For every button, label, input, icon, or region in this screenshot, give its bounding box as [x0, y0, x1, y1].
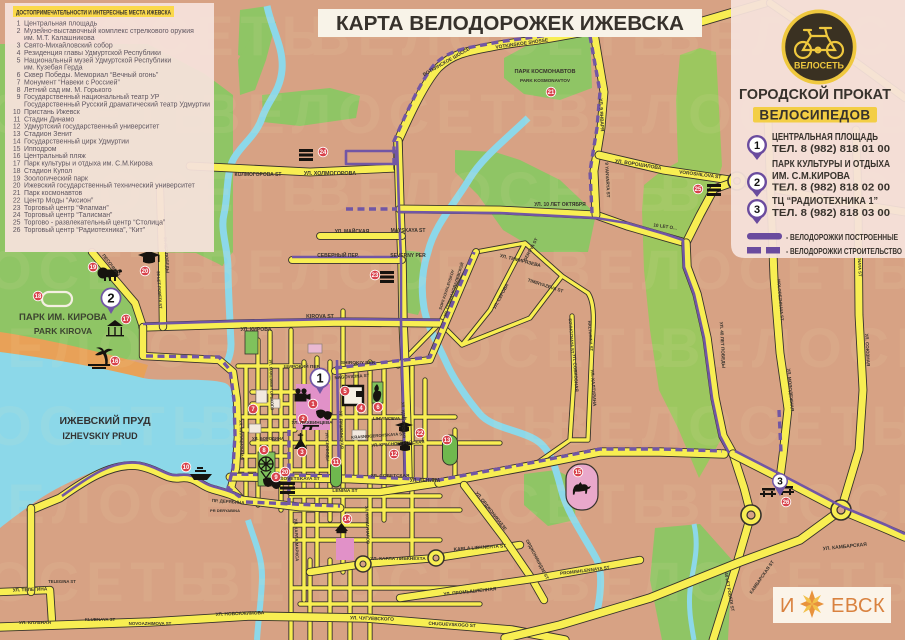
svg-text:23: 23 — [372, 273, 379, 279]
svg-text:SEVERNY PER: SEVERNY PER — [390, 253, 426, 259]
svg-text:10: 10 — [183, 465, 190, 471]
svg-text:5: 5 — [17, 57, 21, 64]
svg-text:Стадин Динамо: Стадин Динамо — [24, 116, 74, 123]
svg-text:26: 26 — [13, 227, 21, 234]
svg-text:KIROVA ST: KIROVA ST — [306, 314, 334, 320]
svg-text:ГОРОДСКОЙ ПРОКАТ: ГОРОДСКОЙ ПРОКАТ — [739, 85, 891, 103]
svg-text:Центральная площадь: Центральная площадь — [24, 21, 98, 28]
svg-text:Торговый центр “Радиотехника”: Торговый центр “Радиотехника”, “Кит” — [24, 226, 146, 234]
svg-text:УЛ. ЛЕНИНА: УЛ. ЛЕНИНА — [410, 478, 441, 484]
svg-text:1: 1 — [17, 21, 21, 28]
svg-text:Центр Моды “Аксион”: Центр Моды “Аксион” — [24, 197, 94, 204]
svg-text:Музейно-выставочный комплекс с: Музейно-выставочный комплекс стрелкового… — [24, 27, 194, 35]
svg-text:Ижевский государственный техни: Ижевский государственный технический уни… — [24, 182, 196, 190]
svg-text:11: 11 — [333, 460, 340, 466]
svg-text:3: 3 — [17, 43, 21, 50]
svg-text:Торговый центр “Флагман”: Торговый центр “Флагман” — [24, 204, 109, 212]
svg-text:ИМ. С.М.КИРОВА: ИМ. С.М.КИРОВА — [772, 171, 851, 182]
svg-text:Стадион Зенит: Стадион Зенит — [24, 131, 73, 138]
svg-text:19: 19 — [90, 265, 97, 271]
svg-text:Парк космонавтов: Парк космонавтов — [24, 190, 83, 197]
svg-text:УЛ. ХОЛМОГОРОВА: УЛ. ХОЛМОГОРОВА — [304, 171, 356, 177]
svg-text:ВЕЛОСЕТЬ: ВЕЛОСЕТЬ — [200, 82, 569, 145]
svg-text:ДОСТОПРИМЕЧАТЕЛЬНОСТИ И ИНТЕРЕ: ДОСТОПРИМЕЧАТЕЛЬНОСТИ И ИНТЕРЕСНЫЕ МЕСТА… — [16, 10, 171, 17]
svg-text:MAYSKAYA ST: MAYSKAYA ST — [391, 228, 426, 234]
svg-text:УЛ. ТЕЛЕГИНА: УЛ. ТЕЛЕГИНА — [13, 586, 48, 593]
svg-text:КОЛМОГОРОВА ST: КОЛМОГОРОВА ST — [235, 172, 282, 178]
svg-text:25: 25 — [13, 220, 21, 227]
svg-text:PR DERYABINA: PR DERYABINA — [210, 508, 240, 513]
svg-text:Летний сад им. М. Горького: Летний сад им. М. Горького — [24, 86, 112, 94]
svg-text:17: 17 — [123, 317, 130, 323]
svg-text:Пристань Ижевск: Пристань Ижевск — [24, 109, 81, 116]
svg-text:Парк культуры и отдыха им. С.М: Парк культуры и отдыха им. С.М.Кирова — [24, 161, 153, 168]
svg-text:15: 15 — [13, 146, 21, 153]
svg-text:22: 22 — [417, 431, 424, 437]
svg-text:УЛ. КИРОВА: УЛ. КИРОВА — [240, 327, 271, 333]
svg-text:24: 24 — [320, 150, 327, 156]
svg-text:2: 2 — [17, 28, 21, 35]
svg-text:20: 20 — [282, 470, 289, 476]
svg-text:6: 6 — [17, 72, 21, 79]
svg-text:Государственный цирк Удмуртии: Государственный цирк Удмуртии — [24, 137, 129, 145]
svg-text:13: 13 — [444, 438, 451, 444]
svg-text:- ВЕЛОДОРОЖКИ СТРОИТЕЛЬСТВО: - ВЕЛОДОРОЖКИ СТРОИТЕЛЬСТВО — [786, 247, 902, 256]
svg-text:УЛ. КАРЛА ЛИБКНЕХТА: УЛ. КАРЛА ЛИБКНЕХТА — [370, 556, 426, 562]
svg-text:17: 17 — [13, 161, 21, 168]
svg-text:ЦЕНТРАЛЬНАЯ ПЛОЩАДЬ: ЦЕНТРАЛЬНАЯ ПЛОЩАДЬ — [772, 132, 878, 143]
svg-text:4: 4 — [17, 50, 21, 57]
svg-text:ВЕЛОСЕТЬ: ВЕЛОСЕТЬ — [900, 550, 905, 613]
svg-text:19: 19 — [13, 175, 21, 182]
svg-text:ВЕЛОСИПЕДОВ: ВЕЛОСИПЕДОВ — [759, 108, 870, 123]
svg-text:24: 24 — [13, 212, 21, 219]
svg-text:PARK KOSMONAVTOV: PARK KOSMONAVTOV — [520, 78, 571, 83]
svg-text:Государственный национальный т: Государственный национальный театр УР — [24, 93, 160, 101]
svg-text:21: 21 — [548, 90, 555, 96]
svg-text:25: 25 — [695, 187, 702, 193]
svg-text:ТЕЛ. 8 (982) 818 03 00: ТЕЛ. 8 (982) 818 03 00 — [772, 208, 890, 219]
svg-text:8: 8 — [17, 87, 21, 94]
svg-text:Резиденция главы Удмуртской Ре: Резиденция главы Удмуртской Республики — [24, 49, 161, 57]
svg-text:16: 16 — [13, 153, 21, 160]
svg-text:SOVETSKAYA ST: SOVETSKAYA ST — [280, 476, 320, 482]
svg-text:TELEGINA ST: TELEGINA ST — [48, 579, 76, 584]
svg-text:ТЦ “РАДИОТЕХНИКА 1”: ТЦ “РАДИОТЕХНИКА 1” — [772, 196, 878, 207]
svg-text:PARK KIROVA: PARK KIROVA — [34, 326, 92, 336]
svg-text:18: 18 — [35, 294, 42, 300]
svg-text:КАРТА ВЕЛОДОРОЖЕК ИЖЕВСКА: КАРТА ВЕЛОДОРОЖЕК ИЖЕВСКА — [336, 12, 684, 35]
svg-text:9: 9 — [17, 94, 21, 101]
svg-text:ТЕЛ. 8 (982) 818 01 00: ТЕЛ. 8 (982) 818 01 00 — [772, 144, 890, 155]
svg-text:И: И — [780, 595, 794, 617]
svg-text:2: 2 — [107, 291, 114, 306]
svg-text:Ипподром: Ипподром — [24, 146, 57, 153]
svg-text:18: 18 — [13, 168, 21, 175]
svg-text:14: 14 — [13, 138, 21, 145]
svg-text:26: 26 — [783, 500, 790, 506]
svg-text:Центральный пляж: Центральный пляж — [24, 152, 86, 160]
svg-text:16: 16 — [112, 359, 119, 365]
svg-text:им. М.Т. Калашникова: им. М.Т. Калашникова — [24, 35, 95, 42]
svg-text:ПАРК КУЛЬТУРЫ И ОТДЫХА: ПАРК КУЛЬТУРЫ И ОТДЫХА — [772, 159, 891, 170]
svg-text:Монумент “Навеки с Россией”: Монумент “Навеки с Россией” — [24, 79, 120, 87]
svg-text:УЛ. ЛИХВИНЦЕВА: УЛ. ЛИХВИНЦЕВА — [292, 420, 333, 425]
svg-text:СЕВЕРНЫЙ ПЕР.: СЕВЕРНЫЙ ПЕР. — [317, 251, 359, 259]
svg-text:ВЕЛОСЕТЬ: ВЕЛОСЕТЬ — [900, 394, 905, 457]
svg-text:Свято-Михайловский собор: Свято-Михайловский собор — [24, 42, 113, 50]
svg-text:Зоологический парк: Зоологический парк — [24, 174, 89, 182]
svg-text:3: 3 — [777, 477, 783, 488]
svg-text:13: 13 — [13, 131, 21, 138]
svg-text:ТЕЛ. 8 (982) 818 02 00: ТЕЛ. 8 (982) 818 02 00 — [772, 183, 890, 194]
svg-text:20: 20 — [13, 183, 21, 190]
svg-text:21: 21 — [13, 190, 21, 197]
svg-text:LENINA ST: LENINA ST — [332, 488, 357, 494]
svg-text:3: 3 — [754, 204, 760, 216]
svg-text:11: 11 — [13, 116, 20, 123]
svg-text:14: 14 — [344, 517, 351, 523]
svg-text:ПАРК ИМ. КИРОВА: ПАРК ИМ. КИРОВА — [19, 312, 107, 323]
svg-text:15: 15 — [575, 470, 582, 476]
svg-text:Торгово - развлекательный цент: Торгово - развлекательный центр “Столица… — [24, 219, 166, 227]
svg-text:SHIROKIY PER: SHIROKIY PER — [341, 360, 376, 366]
svg-text:Национальный музей Удмуртской: Национальный музей Удмуртской Республики — [24, 56, 171, 64]
svg-text:УЛ. МАЙСКАЯ: УЛ. МАЙСКАЯ — [335, 227, 370, 235]
svg-text:Удмуртский государственный уни: Удмуртский государственный университет — [24, 123, 160, 131]
svg-text:KLUBNAYA ST: KLUBNAYA ST — [85, 617, 116, 622]
svg-text:12: 12 — [13, 124, 21, 131]
svg-text:УЛ. СВОБОДЫ: УЛ. СВОБОДЫ — [324, 432, 330, 461]
svg-text:12: 12 — [391, 452, 398, 458]
svg-text:2: 2 — [754, 177, 760, 189]
svg-text:УЛ. КЛУБНАЯ: УЛ. КЛУБНАЯ — [19, 620, 51, 626]
svg-text:IZHEVSKIY PRUD: IZHEVSKIY PRUD — [62, 431, 138, 441]
svg-text:Торговый центр “Талисман”: Торговый центр “Талисман” — [24, 211, 113, 219]
svg-text:10: 10 — [13, 109, 21, 116]
svg-text:ИЖЕВСКИЙ ПРУД: ИЖЕВСКИЙ ПРУД — [59, 414, 151, 427]
svg-text:Сквер Победы. Мемориал “Вечный: Сквер Победы. Мемориал “Вечный огонь” — [24, 71, 159, 79]
svg-text:23: 23 — [13, 205, 21, 212]
svg-text:NOVOAZHIMOVA ST: NOVOAZHIMOVA ST — [129, 621, 172, 626]
svg-text:1: 1 — [316, 371, 323, 386]
svg-text:Государственный Русский драмат: Государственный Русский драматический те… — [24, 101, 210, 109]
svg-text:УЛ. БОРОДИНА: УЛ. БОРОДИНА — [252, 436, 284, 441]
svg-text:22: 22 — [13, 197, 21, 204]
svg-text:Стадион Купол: Стадион Купол — [24, 168, 72, 175]
svg-text:- ВЕЛОДОРОЖКИ ПОСТРОЕННЫЕ: - ВЕЛОДОРОЖКИ ПОСТРОЕННЫЕ — [786, 233, 898, 242]
svg-text:20: 20 — [142, 269, 149, 275]
svg-text:им. Кузебая Герда: им. Кузебая Герда — [24, 64, 83, 72]
svg-text:УЛ. 10 ЛЕТ ОКТЯБРЯ: УЛ. 10 ЛЕТ ОКТЯБРЯ — [534, 202, 586, 208]
svg-text:7: 7 — [17, 80, 21, 87]
svg-text:ПАРК КОСМОНАВТОВ: ПАРК КОСМОНАВТОВ — [514, 69, 575, 75]
svg-text:ВЕЛОСЕТЬ: ВЕЛОСЕТЬ — [794, 61, 844, 72]
svg-text:ЕВСК: ЕВСК — [831, 595, 885, 617]
svg-text:УЛ. СОВЕТСКАЯ: УЛ. СОВЕТСКАЯ — [371, 473, 410, 479]
svg-text:1: 1 — [754, 140, 760, 152]
